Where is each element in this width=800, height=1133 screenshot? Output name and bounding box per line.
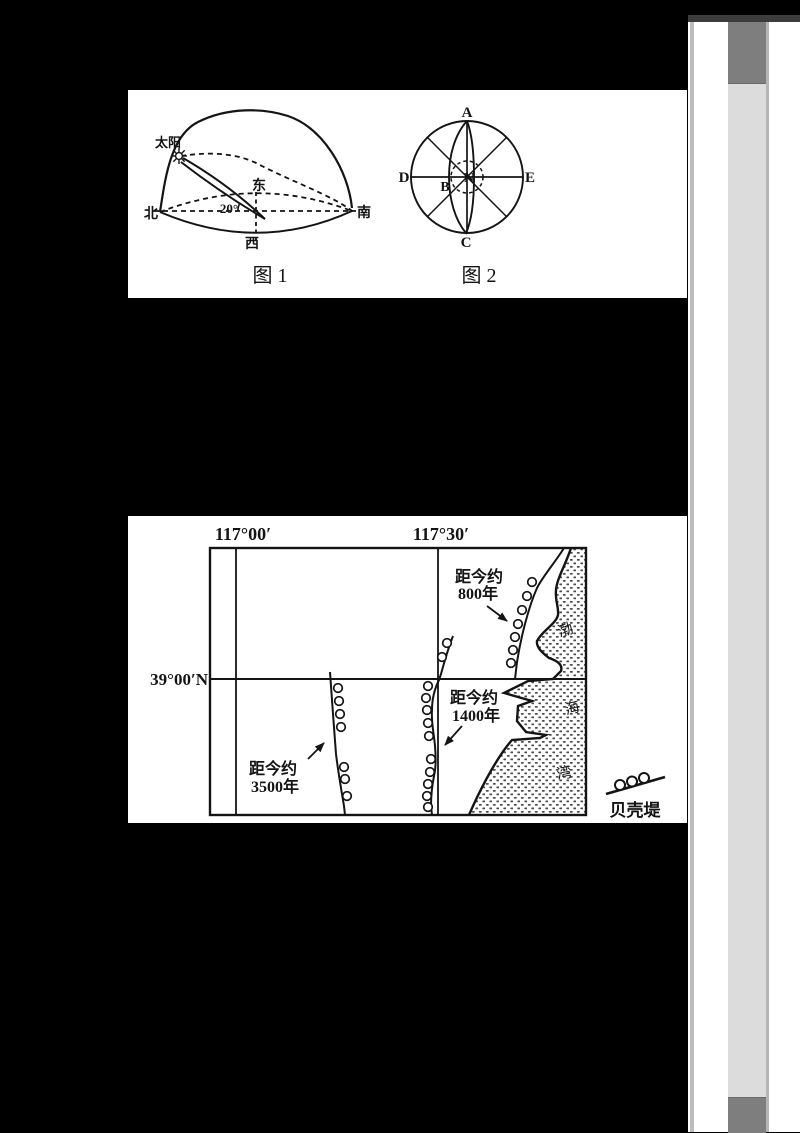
legend-label: 贝壳堤 [610, 800, 662, 820]
annotation-3500: 距今约 3500年 [249, 743, 324, 796]
lon-label-117-30: 117°30′ [413, 524, 469, 544]
annotation-1400-line2: 1400年 [452, 706, 500, 725]
legend-shells [615, 773, 649, 790]
figures-svg: 太阳 北 南 东 西 20° 图 1 A C D E N B [128, 90, 687, 298]
page-edge-line [690, 0, 694, 1132]
page-edge-border [766, 0, 769, 1132]
west-label: 西 [245, 236, 259, 252]
east-label: 东 [252, 177, 266, 194]
annotation-800: 距今约 800年 [455, 567, 507, 621]
south-label: 南 [357, 204, 371, 221]
figure2-polar-circle: A C D E N B 图 2 [399, 105, 535, 287]
ridge-3500-shells [334, 684, 352, 801]
annotation-1400: 距今约 1400年 [445, 688, 500, 745]
page-background: { "figure1": { "sun_label": "太阳", "east"… [0, 0, 800, 1132]
top-black-bar [688, 0, 800, 15]
sun-label: 太阳 [154, 135, 181, 150]
annotation-1400-line1: 距今约 [450, 688, 498, 707]
scrollbar-track[interactable] [728, 22, 766, 1132]
figure-panel-top: 太阳 北 南 东 西 20° 图 1 A C D E N B [128, 90, 687, 298]
figure1-caption: 图 1 [253, 265, 288, 287]
figure2-caption: 图 2 [462, 265, 497, 287]
point-b-label: B [440, 180, 449, 195]
annotation-1400-arrow [445, 726, 462, 745]
annotation-800-arrow [487, 606, 507, 621]
point-d-label: D [399, 170, 410, 186]
top-shadow-band [688, 15, 800, 22]
scrollbar-thumb-top[interactable] [728, 22, 766, 84]
ridge-1400-line [431, 636, 453, 815]
angle-arc [238, 203, 240, 211]
lon-label-117-00: 117°00′ [215, 524, 271, 544]
point-c-label: C [461, 235, 472, 251]
scrollbar-thumb-bottom[interactable] [728, 1097, 766, 1133]
annotation-800-line2: 800年 [458, 584, 498, 603]
north-label: 北 [144, 206, 158, 222]
legend-shell-ridge: 贝壳堤 [606, 773, 665, 820]
annotation-800-line1: 距今约 [455, 567, 503, 586]
point-a-label: A [462, 105, 473, 121]
annotation-3500-line1: 距今约 [249, 759, 297, 778]
sun-icon [171, 148, 187, 164]
ridge-800-shells [507, 578, 537, 668]
map-panel: 117°00′ 117°30′ 39°00′N 距今约 800年 距今约 140… [128, 516, 687, 823]
point-n-label: N [464, 171, 474, 186]
sea-char-wan: 湾 [555, 764, 573, 783]
annotation-3500-line2: 3500年 [251, 777, 299, 796]
ridge-1400-shells [422, 639, 452, 812]
lat-label-39-00: 39°00′N [150, 670, 209, 689]
sun-path-dashed [181, 154, 352, 211]
point-e-label: E [525, 170, 535, 186]
map-svg: 117°00′ 117°30′ 39°00′N 距今约 800年 距今约 140… [128, 516, 687, 823]
figure1-sky-dome: 太阳 北 南 东 西 20° 图 1 [144, 110, 371, 287]
shell-ridge-3500 [330, 672, 351, 815]
right-page-edge [688, 0, 800, 1132]
angle-label: 20° [220, 201, 238, 216]
annotation-3500-arrow [308, 743, 324, 759]
